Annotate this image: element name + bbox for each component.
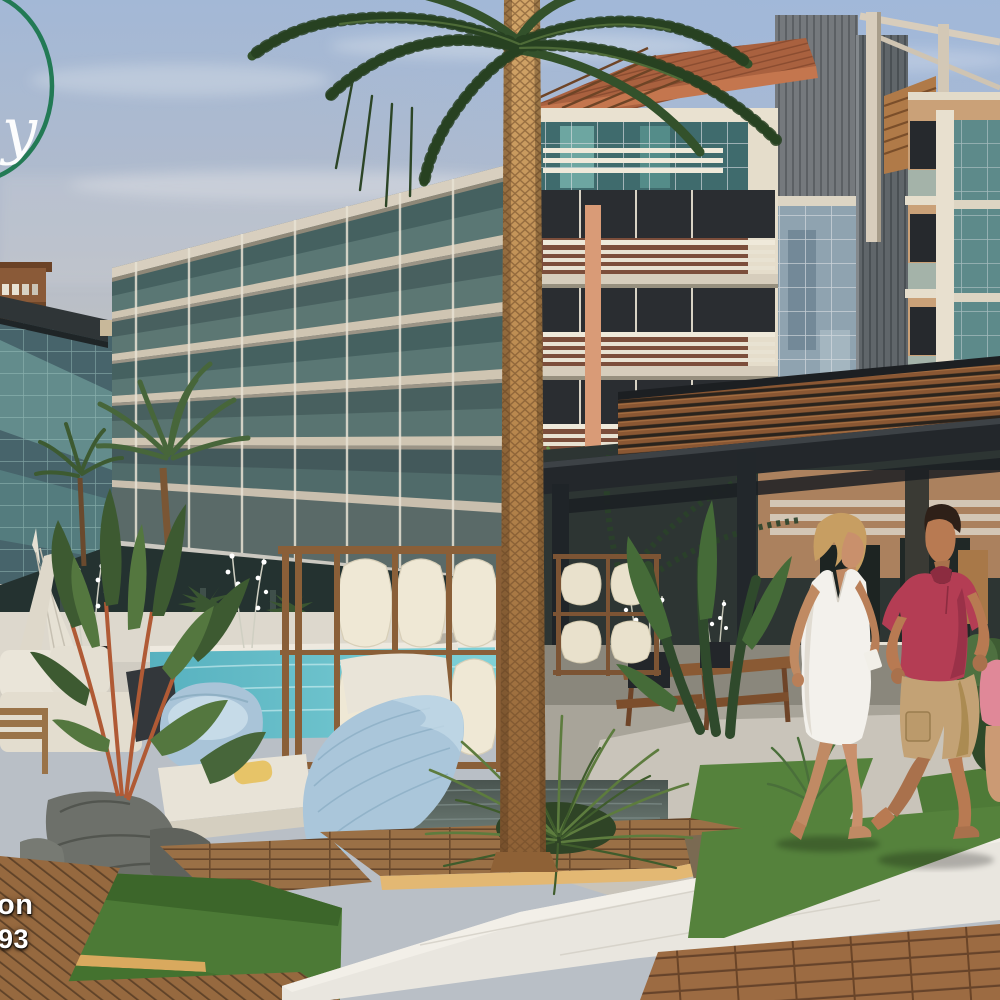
caption-fragment-bottom: 93 bbox=[0, 926, 29, 953]
top-glass-lounge bbox=[540, 122, 748, 194]
caption-fragment-top: on bbox=[0, 891, 33, 920]
cargo-pocket bbox=[906, 712, 930, 741]
resort-render-canvas: y bbox=[0, 0, 1000, 1000]
rendered-photo: y on 93 bbox=[0, 0, 1000, 1000]
logo-letter: y bbox=[0, 94, 38, 167]
trunk-base bbox=[490, 852, 558, 872]
man-front-foot bbox=[953, 826, 979, 839]
